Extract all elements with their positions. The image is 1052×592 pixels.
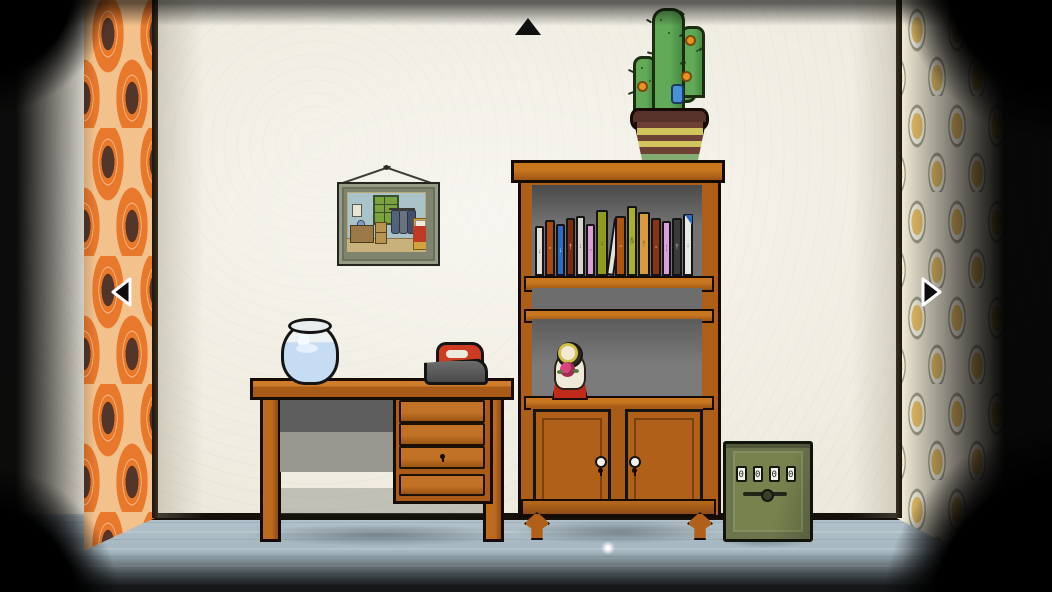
safe-dial-1[interactable]: 0: [736, 466, 747, 482]
bookcase-bottom-rail: [521, 499, 716, 516]
bookcase-cornice: [511, 160, 725, 183]
book[interactable]: ▫: [545, 220, 555, 276]
painting-bedroom-in-arles[interactable]: Bedroom in Arles: [337, 182, 440, 266]
left-wall-shading: [158, 0, 204, 518]
cabinet-keyhole-right[interactable]: [632, 468, 637, 473]
painting-chair: [375, 222, 387, 244]
book[interactable]: ▫: [615, 216, 626, 276]
book-spine-symbol: ▫: [655, 244, 657, 251]
game-stage: Bedroom in Arles ↓▫↓†↓▫↓▫§†▫¦†↓: [0, 0, 1052, 592]
safe-dial-3[interactable]: 0: [769, 466, 780, 482]
painting-blanket: [413, 226, 426, 242]
matryoshka-doll-leaf: [557, 370, 563, 374]
book[interactable]: ▫: [651, 218, 661, 276]
left-arrow-icon[interactable]: [106, 274, 140, 310]
book-spine-symbol: ↓: [600, 240, 604, 247]
right-arrow-icon[interactable]: [913, 274, 947, 310]
bookcase-narrow-shelf-interior: [532, 288, 702, 309]
book[interactable]: †: [566, 218, 575, 276]
pot-stripe: [637, 154, 703, 160]
desk-drawer-unit[interactable]: [393, 393, 493, 504]
book[interactable]: ↓: [535, 226, 544, 276]
book[interactable]: †: [672, 218, 682, 276]
cactus-pot[interactable]: [634, 122, 706, 163]
book-corner: [685, 215, 692, 225]
iron-handle-hole: [446, 350, 468, 358]
book[interactable]: ¦: [662, 221, 671, 276]
matryoshka-doll-face: [561, 346, 575, 360]
desk-drawer-2[interactable]: [399, 423, 485, 446]
painting-scene: Bedroom in Arles: [347, 192, 426, 252]
cactus-flower: [637, 81, 648, 92]
book[interactable]: ▫: [586, 224, 595, 276]
cabinet-keyhole-left[interactable]: [598, 468, 603, 473]
desk-floor-shadow: [248, 524, 510, 546]
book[interactable]: †: [638, 212, 650, 276]
fishbowl-rim[interactable]: [288, 318, 332, 334]
bookcase-cabinet: [531, 406, 703, 509]
painting-table: [350, 225, 374, 243]
cactus-flower: [681, 71, 692, 82]
matryoshka-doll-leaf: [573, 369, 579, 373]
sparkle-hint[interactable]: [601, 541, 615, 555]
books-row[interactable]: ↓▫↓†↓▫↓▫§†▫¦†↓: [535, 206, 701, 276]
safe-dials[interactable]: 0000: [736, 466, 796, 484]
cactus-hidden-item[interactable]: [671, 84, 684, 104]
book-spine-symbol: †: [569, 244, 573, 251]
desk-back-panel-lower: [280, 432, 395, 472]
safe-dial-4[interactable]: 0: [786, 466, 797, 482]
book[interactable]: §: [627, 206, 637, 276]
cactus-flower: [685, 35, 696, 46]
book-spine-symbol: ▫: [589, 247, 591, 254]
desk-drawer-3[interactable]: [399, 446, 485, 469]
book[interactable]: ↓: [576, 216, 585, 276]
desk-leg-left: [260, 392, 281, 542]
book-spine-symbol: †: [642, 241, 646, 248]
book-spine-symbol: †: [675, 244, 679, 251]
cabinet-knob-left[interactable]: [595, 456, 607, 468]
book-spine-symbol: ▫: [549, 245, 551, 252]
desk-drawer-4[interactable]: [399, 474, 485, 496]
up-arrow-icon[interactable]: [513, 16, 543, 38]
desk-drawer-1[interactable]: [399, 400, 485, 423]
book-spine-symbol: ▫: [619, 243, 621, 250]
safe-dial-2[interactable]: 0: [753, 466, 764, 482]
right-wall-shading: [852, 0, 896, 518]
book[interactable]: ↓: [683, 214, 693, 276]
book-spine-symbol: §: [630, 238, 634, 245]
drawer-keyhole[interactable]: [440, 454, 445, 459]
painting-small-frame: [352, 204, 362, 217]
painting-nail: [384, 165, 389, 170]
fishbowl-water-highlight: [296, 344, 318, 353]
book-spine-symbol: ¦: [666, 245, 668, 252]
book-spine-symbol: ↓: [559, 247, 563, 254]
safe-handle-hub[interactable]: [761, 489, 774, 502]
right-wall-corner: [896, 0, 902, 518]
book[interactable]: ↓: [556, 224, 565, 276]
cactus[interactable]: [652, 8, 685, 122]
cabinet-knob-right[interactable]: [629, 456, 641, 468]
book-spine-symbol: ↓: [538, 248, 542, 255]
book-spine-symbol: ↓: [686, 242, 690, 249]
book-spine-symbol: ↓: [579, 243, 583, 250]
